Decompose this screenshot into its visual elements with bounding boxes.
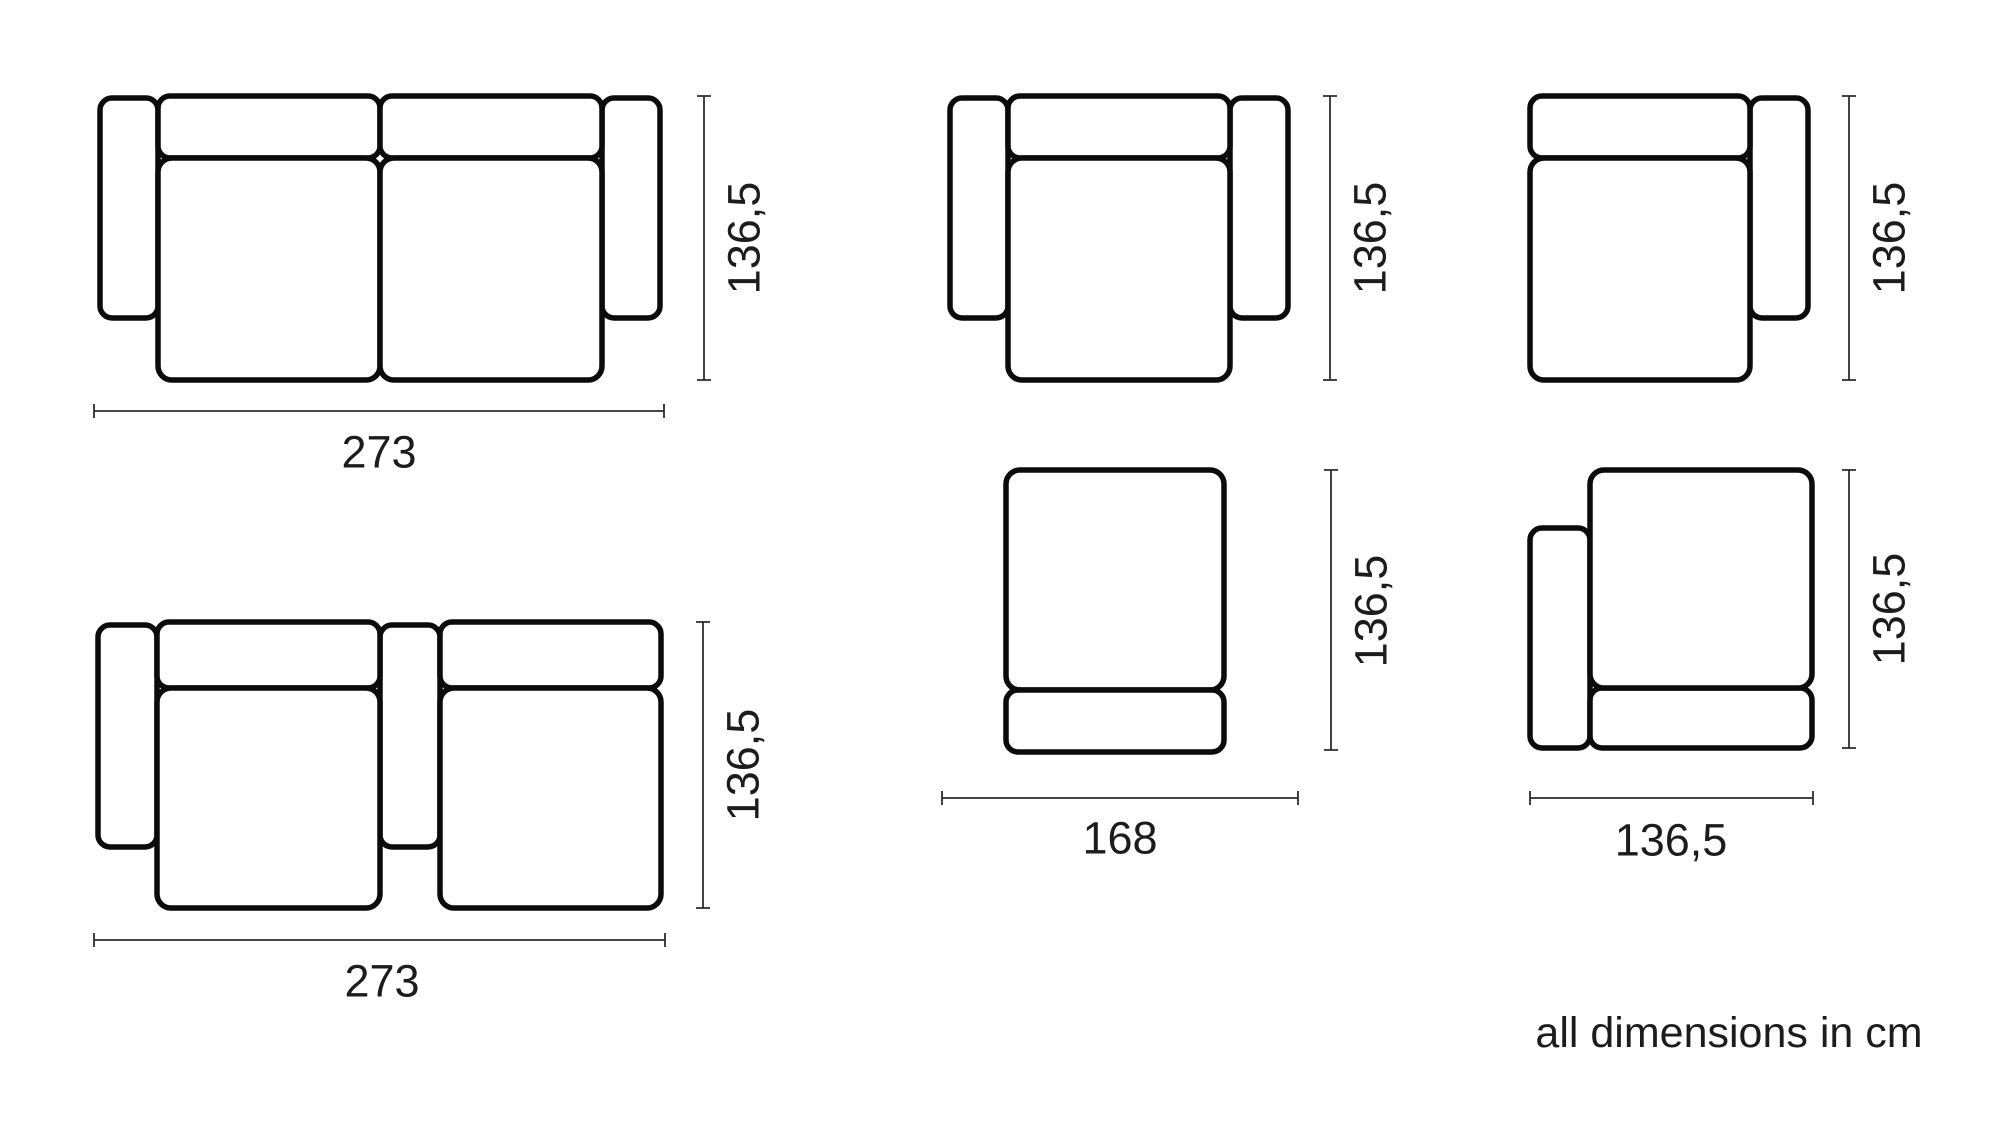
backrest-cushion-left [157, 622, 380, 688]
width-dimension-label: 168 [1082, 813, 1157, 864]
armrest-right [602, 98, 660, 318]
depth-dimension-label: 136,5 [1346, 555, 1397, 668]
seat-cushion-right [380, 158, 602, 380]
seat-cushion [1590, 470, 1812, 688]
seat-cushion-right [440, 688, 661, 908]
armrest-left [950, 98, 1008, 318]
width-dimension-label: 273 [344, 956, 419, 1007]
depth-dimension-label: 136,5 [1864, 182, 1915, 295]
depth-dimension-label: 136,5 [1345, 182, 1396, 295]
seat-cushion-left [157, 688, 380, 908]
dimension-sheet: 136,5 273 136,5 136,5 136,5 273 [0, 0, 2000, 1143]
armrest-right [1750, 98, 1808, 318]
depth-dimension-label: 136,5 [719, 182, 770, 295]
backrest-cushion [1530, 96, 1750, 158]
base-cushion [1590, 688, 1812, 748]
backrest-cushion-right [440, 622, 661, 688]
backrest-cushion-left [158, 96, 380, 158]
units-note: all dimensions in cm [1535, 1009, 1922, 1057]
armrest-left [1530, 528, 1590, 748]
armrest-middle [380, 625, 440, 847]
backrest-cushion-right [380, 96, 602, 158]
seat-cushion-left [158, 158, 380, 380]
depth-dimension-label: 136,5 [718, 709, 769, 822]
width-dimension-label: 273 [341, 427, 416, 478]
seat-cushion [1006, 470, 1224, 690]
width-dimension-label: 136,5 [1615, 815, 1728, 866]
seat-cushion [1530, 158, 1750, 380]
depth-dimension-label: 136,5 [1864, 553, 1915, 666]
furniture-dimension-drawing: 136,5 273 136,5 136,5 136,5 273 [0, 0, 2000, 1143]
armrest-left [98, 625, 157, 847]
seat-cushion [1008, 158, 1230, 380]
backrest-cushion [1008, 96, 1230, 158]
base-cushion [1006, 690, 1224, 752]
armrest-left [100, 98, 158, 318]
armrest-right [1230, 98, 1288, 318]
